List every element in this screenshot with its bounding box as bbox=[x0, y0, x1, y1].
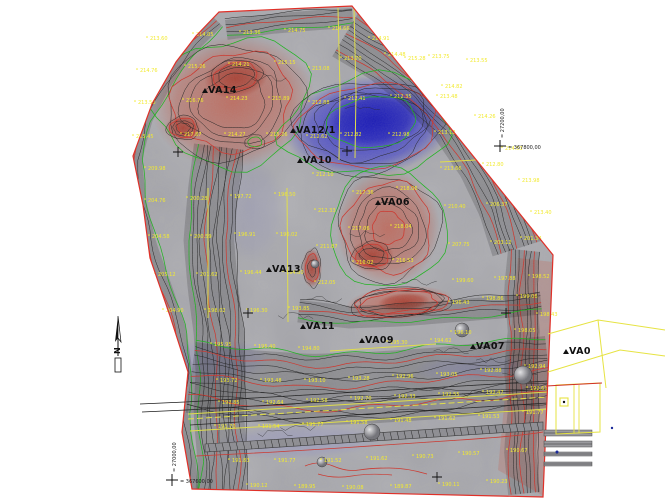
spot-point bbox=[450, 330, 452, 332]
spot-elevation-label: 196.50 bbox=[278, 192, 296, 198]
spot-elevation-label: 192.58 bbox=[310, 398, 328, 404]
spot-elevation-label: 214.82 bbox=[445, 84, 463, 90]
spot-elevation-label: 191.62 bbox=[370, 456, 388, 462]
spot-elevation-label: 215.26 bbox=[270, 132, 288, 138]
spot-elevation-label: 215.28 bbox=[408, 56, 426, 62]
spot-elevation-label: 213.60 bbox=[150, 36, 168, 42]
spot-point bbox=[304, 378, 306, 380]
spot-point bbox=[228, 458, 230, 460]
spot-elevation-label: 192.64 bbox=[266, 400, 284, 406]
spot-point bbox=[308, 100, 310, 102]
spot-elevation-label: 213.66 bbox=[444, 166, 462, 172]
spot-point bbox=[234, 232, 236, 234]
spot-point bbox=[528, 274, 530, 276]
spot-point bbox=[346, 420, 348, 422]
spot-point bbox=[148, 234, 150, 236]
spot-point bbox=[434, 130, 436, 132]
spot-elevation-label: 192.47 bbox=[486, 390, 504, 396]
spot-point bbox=[136, 68, 138, 70]
spot-point bbox=[390, 224, 392, 226]
parcel-or-road-line bbox=[142, 410, 186, 412]
spot-point bbox=[392, 258, 394, 260]
spot-elevation-label: 194.80 bbox=[302, 346, 320, 352]
spot-point bbox=[494, 276, 496, 278]
spot-elevation-label: 213.40 bbox=[534, 210, 552, 216]
parcel-or-road-line bbox=[548, 320, 665, 334]
spot-elevation-label: 213.75 bbox=[432, 54, 450, 60]
spot-point bbox=[284, 28, 286, 30]
station-label-va0: VA0 bbox=[569, 346, 591, 357]
spot-elevation-label: 212.88 bbox=[312, 100, 330, 106]
spot-elevation-label: 190.08 bbox=[346, 485, 364, 491]
spot-point bbox=[328, 26, 330, 28]
spot-elevation-label: 217.36 bbox=[356, 190, 374, 196]
spot-elevation-label: 192.88 bbox=[484, 368, 502, 374]
spot-elevation-label: 216.02 bbox=[356, 260, 374, 266]
spot-elevation-label: 191.62 bbox=[438, 416, 456, 422]
spot-point bbox=[352, 190, 354, 192]
spot-point bbox=[262, 400, 264, 402]
spot-elevation-label: 193.10 bbox=[308, 378, 326, 384]
station-label-va11: VA11 bbox=[306, 321, 335, 332]
spot-point bbox=[144, 198, 146, 200]
spot-point bbox=[276, 232, 278, 234]
spot-point bbox=[314, 208, 316, 210]
spot-point bbox=[146, 36, 148, 38]
spot-point bbox=[441, 84, 443, 86]
survey-point bbox=[556, 451, 559, 454]
spot-point bbox=[246, 483, 248, 485]
spot-point bbox=[308, 66, 310, 68]
spot-point bbox=[448, 242, 450, 244]
spot-elevation-label: 213.48 bbox=[440, 94, 458, 100]
spot-point bbox=[486, 202, 488, 204]
spot-elevation-label: 193.85 bbox=[292, 306, 310, 312]
coordinate-label-y: = 367800,00 bbox=[508, 145, 541, 151]
spot-point bbox=[490, 240, 492, 242]
spot-point bbox=[480, 368, 482, 370]
spot-elevation-label: 206.37 bbox=[490, 202, 508, 208]
spot-elevation-label: 192.33 bbox=[398, 394, 416, 400]
spot-point bbox=[144, 166, 146, 168]
spot-point bbox=[444, 204, 446, 206]
spot-elevation-label: 193.48 bbox=[264, 378, 282, 384]
spot-point bbox=[239, 30, 241, 32]
spot-point bbox=[294, 484, 296, 486]
spot-point bbox=[526, 386, 528, 388]
spot-point bbox=[240, 270, 242, 272]
spot-point bbox=[192, 32, 194, 34]
spot-point bbox=[394, 394, 396, 396]
spot-elevation-label: 214.76 bbox=[140, 68, 158, 74]
spot-point bbox=[344, 96, 346, 98]
spot-elevation-label: 199.06 bbox=[520, 294, 538, 300]
spot-elevation-label: 214.26 bbox=[478, 114, 496, 120]
spot-point bbox=[274, 192, 276, 194]
spot-point bbox=[388, 132, 390, 134]
spot-elevation-label: 215.15 bbox=[278, 60, 296, 66]
parcel-or-road-line bbox=[556, 383, 600, 434]
spot-elevation-label: 190.73 bbox=[416, 454, 434, 460]
spot-point bbox=[184, 64, 186, 66]
spot-elevation-label: 214.75 bbox=[288, 28, 306, 34]
station-label-va09: VA09 bbox=[365, 335, 394, 346]
spot-elevation-label: 198.02 bbox=[208, 308, 226, 314]
spot-elevation-label: 214.27 bbox=[228, 132, 246, 138]
spot-elevation-label: 200.59 bbox=[194, 234, 212, 240]
spot-elevation-label: 192.94 bbox=[528, 364, 546, 370]
spot-elevation-label: 191.83 bbox=[232, 458, 250, 464]
spot-elevation-label: 191.77 bbox=[306, 422, 324, 428]
spot-point bbox=[228, 62, 230, 64]
spot-point bbox=[466, 58, 468, 60]
spot-elevation-label: 193.05 bbox=[440, 372, 458, 378]
spot-elevation-label: 204.58 bbox=[152, 234, 170, 240]
spot-elevation-label: 198.86 bbox=[486, 296, 504, 302]
spot-point bbox=[390, 484, 392, 486]
map-raster bbox=[0, 0, 667, 500]
spot-elevation-label: 207.75 bbox=[452, 242, 470, 248]
spot-elevation-label: 203.12 bbox=[494, 240, 512, 246]
spot-point bbox=[134, 100, 136, 102]
spot-point bbox=[390, 94, 392, 96]
spot-elevation-label: 213.36 bbox=[243, 30, 261, 36]
spot-elevation-label: 192.85 bbox=[222, 400, 240, 406]
spot-point bbox=[438, 392, 440, 394]
spot-elevation-label: 194.62 bbox=[434, 338, 452, 344]
spot-elevation-label: 212.05 bbox=[318, 280, 336, 286]
station-label-va121: VA12/1 bbox=[296, 125, 336, 136]
spot-point bbox=[260, 378, 262, 380]
spot-point bbox=[162, 308, 164, 310]
spot-elevation-label: 196.91 bbox=[238, 232, 256, 238]
north-label: N bbox=[113, 347, 122, 354]
spot-elevation-label: 191.54 bbox=[262, 424, 280, 430]
spot-point bbox=[390, 418, 392, 420]
spot-point bbox=[482, 296, 484, 298]
spot-point bbox=[350, 396, 352, 398]
spot-elevation-label: 217.87 bbox=[184, 132, 202, 138]
spot-point bbox=[218, 400, 220, 402]
spot-point bbox=[204, 308, 206, 310]
spot-elevation-label: 209.98 bbox=[148, 166, 166, 172]
spot-elevation-label: 212.35 bbox=[394, 94, 412, 100]
spot-elevation-label: 198.43 bbox=[540, 312, 558, 318]
spot-elevation-label: 205.12 bbox=[158, 272, 176, 278]
spot-point bbox=[302, 422, 304, 424]
station-label-va10: VA10 bbox=[303, 155, 332, 166]
spot-elevation-label: 215.89 bbox=[272, 96, 290, 102]
spot-point bbox=[530, 210, 532, 212]
spot-point bbox=[448, 300, 450, 302]
station-label-va13: VA13 bbox=[272, 264, 301, 275]
spot-point bbox=[298, 346, 300, 348]
spot-point bbox=[274, 60, 276, 62]
spot-point bbox=[352, 260, 354, 262]
spot-point bbox=[230, 194, 232, 196]
spot-point bbox=[384, 52, 386, 54]
spot-point bbox=[186, 196, 188, 198]
spot-elevation-label: 191.77 bbox=[526, 410, 544, 416]
spot-elevation-label: 214.21 bbox=[232, 62, 250, 68]
spot-elevation-label: 195.40 bbox=[258, 344, 276, 350]
spot-elevation-label: 214.23 bbox=[230, 96, 248, 102]
spot-elevation-label: 191.70 bbox=[218, 424, 236, 430]
spot-point bbox=[266, 132, 268, 134]
spot-elevation-label: 212.10 bbox=[316, 172, 334, 178]
parcel-or-road-line bbox=[598, 320, 606, 388]
coordinate-label-x: = 27000,00 bbox=[172, 442, 178, 472]
spot-point bbox=[486, 479, 488, 481]
spot-elevation-label: 214.66 bbox=[332, 26, 350, 32]
spot-elevation-label: 192.96 bbox=[396, 374, 414, 380]
spot-point bbox=[482, 162, 484, 164]
spot-point bbox=[274, 458, 276, 460]
spot-point bbox=[396, 186, 398, 188]
spot-point bbox=[214, 424, 216, 426]
spot-elevation-label: 213.55 bbox=[470, 58, 488, 64]
spot-point bbox=[430, 338, 432, 340]
spot-elevation-label: 191.52 bbox=[324, 458, 342, 464]
spot-point bbox=[522, 410, 524, 412]
spot-point bbox=[316, 244, 318, 246]
spot-point bbox=[368, 36, 370, 38]
spot-point bbox=[366, 456, 368, 458]
coordinate-label-x: = 27200,00 bbox=[500, 108, 506, 138]
spot-elevation-label: 212.33 bbox=[318, 208, 336, 214]
spot-point bbox=[514, 328, 516, 330]
spot-elevation-label: 192.70 bbox=[354, 396, 372, 402]
spot-point bbox=[226, 96, 228, 98]
station-label-va14: VA14 bbox=[208, 85, 237, 96]
spot-point bbox=[482, 390, 484, 392]
spot-elevation-label: 191.77 bbox=[278, 458, 296, 464]
spot-point bbox=[180, 132, 182, 134]
spot-elevation-label: 204.76 bbox=[148, 198, 166, 204]
spot-elevation-label: 198.05 bbox=[518, 328, 536, 334]
spot-elevation-label: 190.12 bbox=[250, 483, 268, 489]
spot-point bbox=[474, 114, 476, 116]
spot-elevation-label: 190.67 bbox=[510, 448, 528, 454]
parcel-or-road-line bbox=[140, 402, 185, 404]
spot-elevation-label: 212.98 bbox=[392, 132, 410, 138]
spot-elevation-label: 212.80 bbox=[486, 162, 504, 168]
spot-elevation-label: 213.98 bbox=[522, 178, 540, 184]
spot-elevation-label: 217.06 bbox=[352, 226, 370, 232]
spot-elevation-label: 218.06 bbox=[400, 186, 418, 192]
spot-elevation-label: 191.53 bbox=[482, 414, 500, 420]
spot-elevation-label: 196.44 bbox=[244, 270, 262, 276]
spot-point bbox=[288, 306, 290, 308]
spot-elevation-label: 197.88 bbox=[498, 276, 516, 282]
spot-point bbox=[190, 234, 192, 236]
spot-point bbox=[224, 132, 226, 134]
spot-elevation-label: 193.28 bbox=[352, 376, 370, 382]
spot-elevation-label: 196.02 bbox=[280, 232, 298, 238]
spot-point bbox=[306, 398, 308, 400]
spot-point bbox=[520, 236, 522, 238]
coordinate-mark: = 27200,00= 367800,00 bbox=[494, 108, 541, 152]
spot-point bbox=[452, 278, 454, 280]
spot-elevation-label: 191.48 bbox=[394, 418, 412, 424]
spot-elevation-label: 197.72 bbox=[234, 194, 252, 200]
spot-point bbox=[182, 98, 184, 100]
spot-point bbox=[348, 376, 350, 378]
spot-elevation-label: 192.55 bbox=[442, 392, 460, 398]
spot-elevation-label: 210.40 bbox=[448, 204, 466, 210]
spot-point bbox=[254, 344, 256, 346]
spot-point bbox=[458, 451, 460, 453]
spot-point bbox=[340, 56, 342, 58]
spot-point bbox=[132, 134, 134, 136]
spot-elevation-label: 213.08 bbox=[312, 66, 330, 72]
spot-point bbox=[506, 448, 508, 450]
north-arrow: N bbox=[113, 316, 122, 372]
building-point bbox=[563, 401, 565, 403]
spot-elevation-label: 216.76 bbox=[186, 98, 204, 104]
quarry-contour-map: 213.60214.05213.36214.75214.66214.91215.… bbox=[0, 0, 667, 500]
spot-elevation-label: 215.26 bbox=[188, 64, 206, 70]
survey-point bbox=[611, 427, 613, 429]
spot-elevation-label: 196.43 bbox=[452, 300, 470, 306]
spot-elevation-label: 192.61 bbox=[530, 386, 548, 392]
spot-point bbox=[342, 485, 344, 487]
spot-elevation-label: 190.23 bbox=[490, 479, 508, 485]
spot-elevation-label: 189.95 bbox=[298, 484, 316, 490]
spot-elevation-label: 191.58 bbox=[350, 420, 368, 426]
hillshade-grain bbox=[0, 0, 667, 500]
spot-point bbox=[210, 342, 212, 344]
spot-point bbox=[478, 414, 480, 416]
spot-point bbox=[438, 482, 440, 484]
spot-elevation-label: 200.28 bbox=[190, 196, 208, 202]
spot-point bbox=[196, 272, 198, 274]
spot-point bbox=[436, 372, 438, 374]
spot-elevation-label: 218.04 bbox=[394, 224, 412, 230]
spot-point bbox=[314, 280, 316, 282]
spot-point bbox=[392, 374, 394, 376]
coordinate-label-y: = 367600,00 bbox=[180, 479, 213, 485]
parcel-or-road-line bbox=[574, 385, 579, 433]
spot-point bbox=[312, 172, 314, 174]
spot-elevation-label: 196.10 bbox=[454, 330, 472, 336]
spot-point bbox=[434, 416, 436, 418]
spot-elevation-label: 216.53 bbox=[396, 258, 414, 264]
spot-elevation-label: 212.82 bbox=[344, 132, 362, 138]
spot-elevation-label: 199.60 bbox=[456, 278, 474, 284]
spot-point bbox=[268, 96, 270, 98]
spot-point bbox=[428, 54, 430, 56]
spot-point bbox=[440, 166, 442, 168]
spot-point bbox=[320, 458, 322, 460]
spot-elevation-label: 213.70 bbox=[344, 56, 362, 62]
spot-point bbox=[348, 226, 350, 228]
station-label-va07: VA07 bbox=[476, 341, 505, 352]
spot-point bbox=[524, 364, 526, 366]
spot-point bbox=[536, 312, 538, 314]
spot-elevation-label: 190.11 bbox=[442, 482, 460, 488]
spot-elevation-label: 212.41 bbox=[348, 96, 366, 102]
spot-elevation-label: 198.52 bbox=[532, 274, 550, 280]
spot-elevation-label: 189.87 bbox=[394, 484, 412, 490]
spot-elevation-label: 190.57 bbox=[462, 451, 480, 457]
spot-point bbox=[340, 132, 342, 134]
station-label-va06: VA06 bbox=[381, 197, 410, 208]
spot-elevation-label: 201.62 bbox=[200, 272, 218, 278]
spot-point bbox=[518, 178, 520, 180]
spot-elevation-label: 195.95 bbox=[214, 342, 232, 348]
spot-point bbox=[516, 294, 518, 296]
spot-elevation-label: 193.72 bbox=[220, 378, 238, 384]
spot-point bbox=[412, 454, 414, 456]
spot-point bbox=[436, 94, 438, 96]
spot-point bbox=[216, 378, 218, 380]
spot-elevation-label: 211.87 bbox=[320, 244, 338, 250]
survey-map-page: 213.60214.05213.36214.75214.66214.91215.… bbox=[0, 0, 667, 500]
spot-point bbox=[258, 424, 260, 426]
